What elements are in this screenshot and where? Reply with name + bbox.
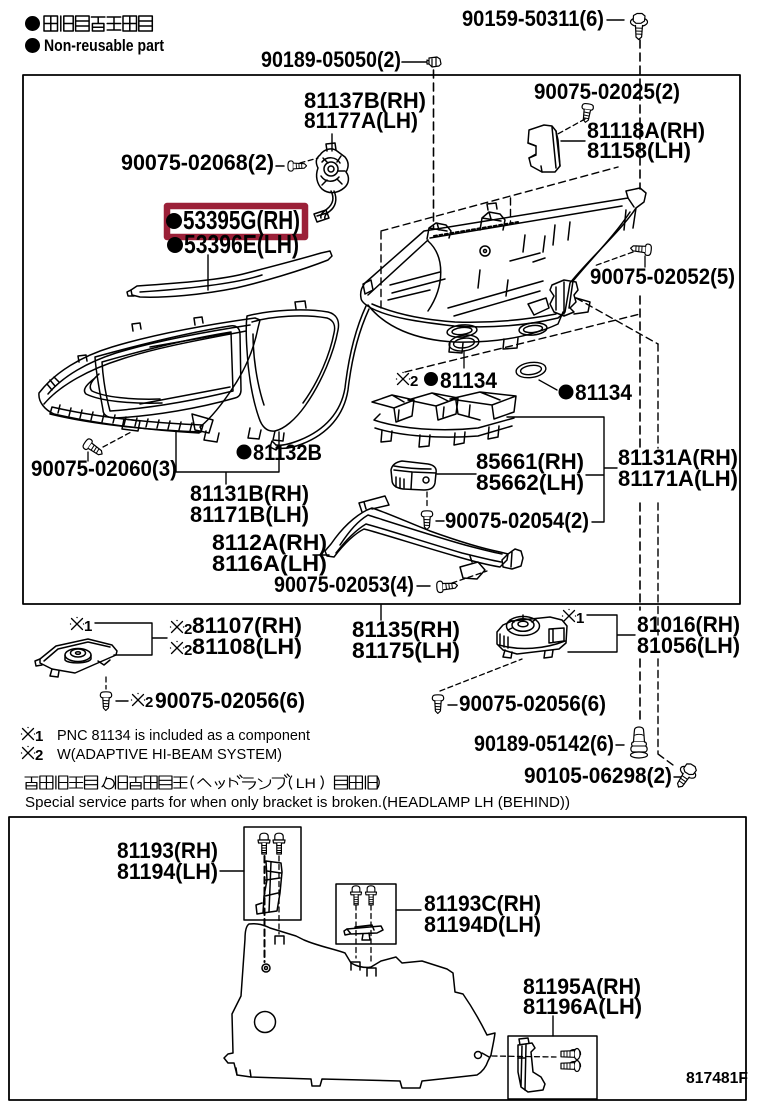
svg-text:81056(LH): 81056(LH): [637, 633, 740, 658]
svg-text:90075-02025(2): 90075-02025(2): [534, 79, 680, 104]
svg-text:Non-reusable part: Non-reusable part: [44, 37, 164, 55]
svg-text:1: 1: [576, 610, 584, 627]
svg-text:81196A(LH): 81196A(LH): [523, 994, 642, 1019]
svg-text:81171A(LH): 81171A(LH): [618, 466, 738, 491]
svg-text:81171B(LH): 81171B(LH): [190, 502, 309, 527]
svg-text:81134: 81134: [440, 368, 497, 393]
svg-text:90105-06298(2): 90105-06298(2): [524, 763, 672, 788]
svg-text:90075-02056(6): 90075-02056(6): [459, 691, 606, 716]
svg-text:2: 2: [35, 747, 43, 764]
svg-text:90159-50311(6): 90159-50311(6): [462, 6, 604, 31]
svg-text:90075-02068(2): 90075-02068(2): [121, 150, 274, 175]
svg-text:90075-02060(3): 90075-02060(3): [31, 456, 177, 481]
svg-text:PNC 81134 is included as a com: PNC 81134 is included as a component: [57, 727, 311, 744]
svg-text:1: 1: [84, 618, 92, 635]
svg-text:81175(LH): 81175(LH): [352, 638, 460, 663]
svg-text:81108(LH): 81108(LH): [192, 634, 302, 659]
svg-text:90075-02056(6): 90075-02056(6): [155, 688, 305, 713]
svg-text:90075-02054(2): 90075-02054(2): [445, 508, 589, 533]
svg-text:85662(LH): 85662(LH): [476, 470, 584, 495]
svg-text:90189-05050(2): 90189-05050(2): [261, 47, 401, 72]
svg-text:90075-02052(5): 90075-02052(5): [590, 264, 735, 289]
svg-text:90189-05142(6): 90189-05142(6): [474, 731, 614, 756]
svg-text:Special service parts for when: Special service parts for when only brac…: [25, 794, 570, 811]
svg-text:81158(LH): 81158(LH): [587, 138, 691, 163]
svg-text:53396E(LH): 53396E(LH): [184, 231, 299, 259]
svg-text:81134: 81134: [575, 380, 632, 405]
svg-text:90075-02053(4): 90075-02053(4): [274, 572, 414, 597]
svg-text:2: 2: [410, 373, 418, 390]
svg-text:81177A(LH): 81177A(LH): [304, 108, 418, 133]
svg-text:LH: LH: [296, 776, 316, 792]
svg-text:W(ADAPTIVE HI-BEAM SYSTEM): W(ADAPTIVE HI-BEAM SYSTEM): [57, 746, 282, 763]
svg-text:2: 2: [145, 694, 153, 711]
svg-text:817481F: 817481F: [686, 1070, 748, 1087]
svg-text:81194(LH): 81194(LH): [117, 859, 218, 884]
svg-text:81194D(LH): 81194D(LH): [424, 912, 541, 937]
svg-text:1: 1: [35, 728, 43, 745]
